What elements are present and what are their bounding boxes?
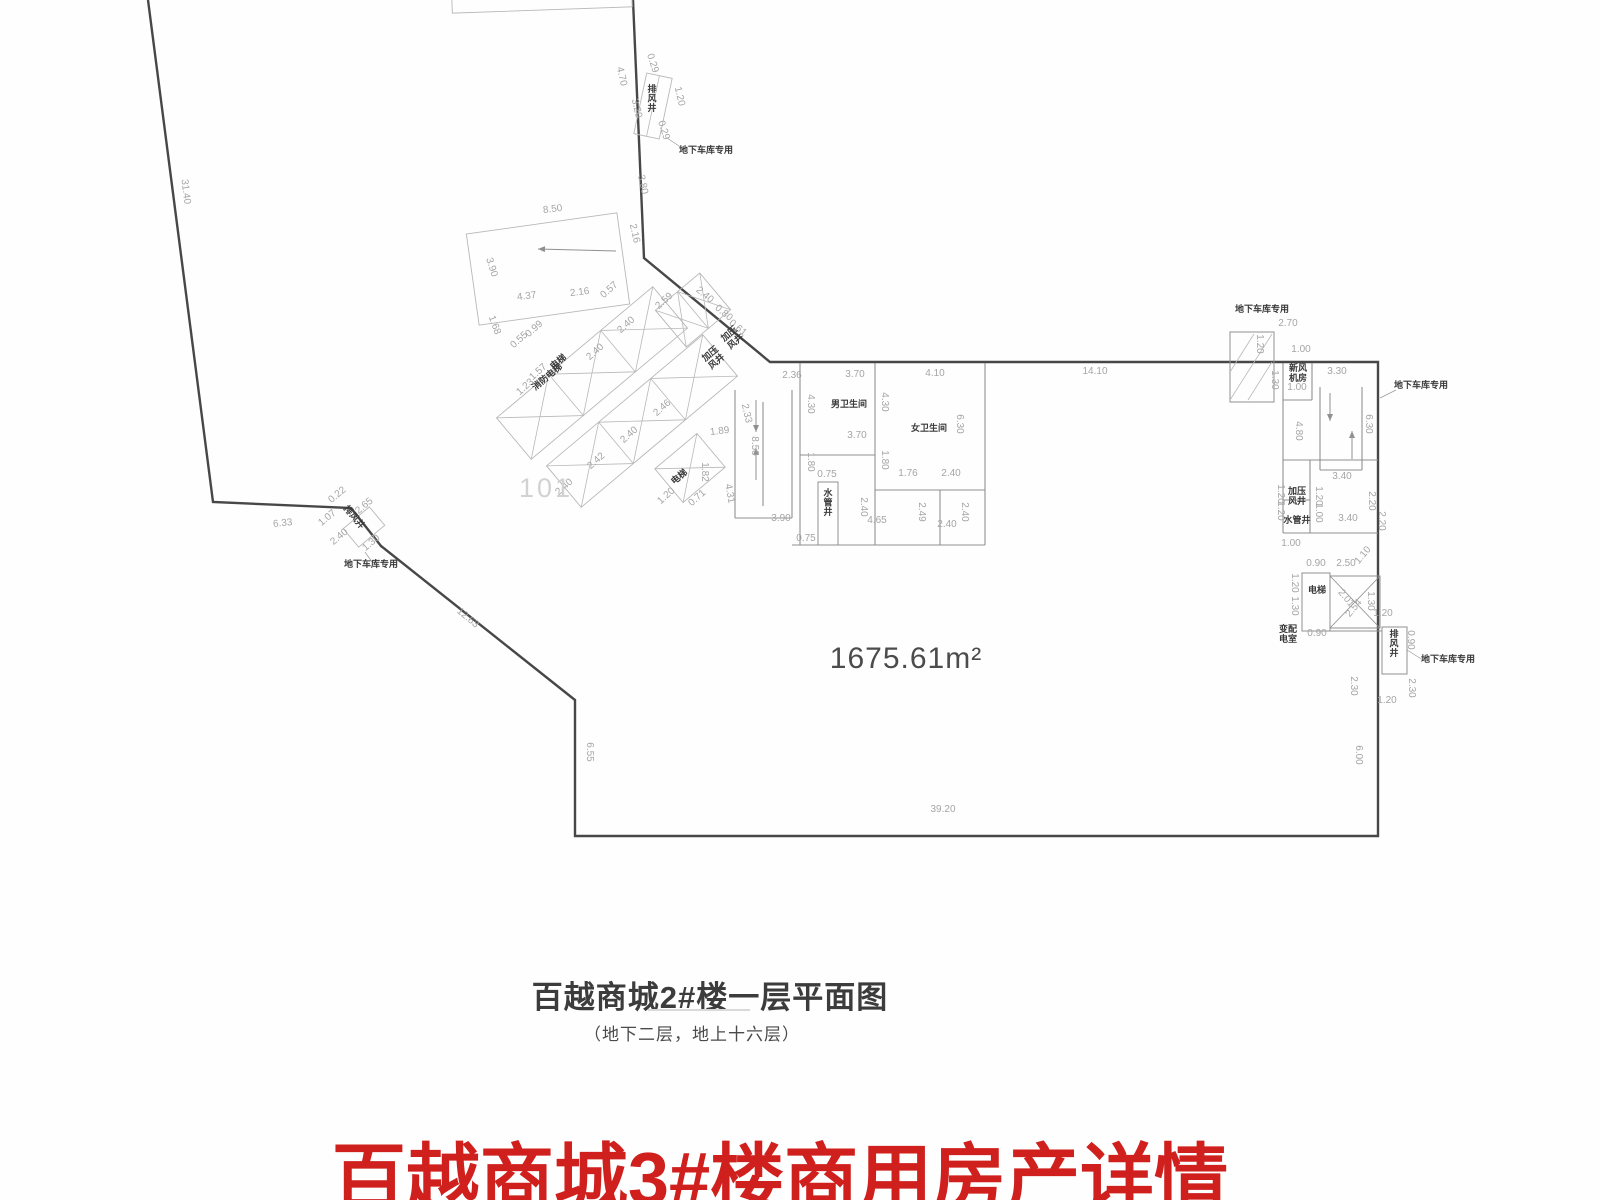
dimension-label: 1.20 xyxy=(655,485,677,506)
room-label: 加压风井 xyxy=(699,343,727,371)
dimension-label: 6.55 xyxy=(584,742,595,762)
area-label: 101 xyxy=(519,473,573,503)
dimension-label: 1.80 xyxy=(805,452,816,472)
dimension-label: 1.20 xyxy=(1289,573,1300,593)
dimension-label: 2.36 xyxy=(782,370,802,381)
dimension-label: 3.80 xyxy=(635,174,650,196)
dimension-label: 6.30 xyxy=(1363,414,1374,434)
dimension-label: 1.30 xyxy=(360,532,382,553)
dimension-label: 2.40 xyxy=(941,468,961,479)
dimension-label: 2.40 xyxy=(959,502,970,522)
dimension-label: 2.40 xyxy=(584,341,606,362)
dimension-label: 1.76 xyxy=(898,468,918,479)
room-label: 新风机房 xyxy=(1289,362,1307,383)
dimension-label: 2.49 xyxy=(916,502,927,522)
dimension-label: 2.33 xyxy=(739,403,754,425)
room-labels: 排风井地下车库专用电梯消防电梯加压风井加压风井电梯男卫生间女卫生间水管井排风井地… xyxy=(342,83,1475,664)
dimension-label: 4.80 xyxy=(1293,421,1304,441)
big-labels: 1011675.61m² xyxy=(519,473,982,675)
room-label: 变配电室 xyxy=(1279,623,1297,644)
dimension-label: 2.59 xyxy=(653,290,675,311)
dimension-label: 4.30 xyxy=(805,394,816,414)
dimension-label: 3.40 xyxy=(1332,471,1352,482)
dimension-label: 1.10 xyxy=(1353,544,1374,566)
dimension-label: 1.30 xyxy=(1289,596,1300,616)
room-label: 排风井 xyxy=(647,83,656,113)
dimension-label: 14.10 xyxy=(1082,366,1107,377)
dimension-label: 3.20 xyxy=(629,98,644,120)
dimension-label: 0.90 xyxy=(1405,630,1416,650)
dimension-label: 6.33 xyxy=(272,517,293,530)
dimension-label: 1.20 xyxy=(1377,695,1397,706)
dimension-label: 1.00 xyxy=(1313,503,1324,523)
dimension-label: 1.80 xyxy=(879,450,890,470)
dimension-label: 0.57 xyxy=(598,279,620,300)
dimension-label: 1.89 xyxy=(709,425,730,438)
dimension-label: 31.40 xyxy=(178,179,192,206)
dimension-label: 4.37 xyxy=(516,290,537,303)
dimension-label: 1.00 xyxy=(1291,344,1311,355)
dimension-label: 2.40 xyxy=(937,519,957,530)
dimension-labels: 31.404.700.293.201.200.293.802.168.503.9… xyxy=(178,52,1417,815)
dimension-label: 2.42 xyxy=(585,450,607,471)
dimension-label: 1.68 xyxy=(486,314,503,336)
leader-lines xyxy=(365,138,1423,660)
dimension-label: 2.16 xyxy=(569,286,590,299)
room-label: 地下车库专用 xyxy=(1421,653,1475,664)
dimension-label: 2.16 xyxy=(627,223,642,245)
dimension-label: 1.20 xyxy=(672,86,687,108)
room-label: 水管井 xyxy=(823,487,833,517)
dimension-label: 2.30 xyxy=(1406,678,1417,698)
stair-escalator-lattice xyxy=(343,0,737,547)
dimension-label: 2.30 xyxy=(1348,676,1359,696)
dimension-label: 0.22 xyxy=(326,484,348,505)
dimension-label: 1.00 xyxy=(1287,382,1307,393)
page: 31.404.700.293.201.200.293.802.168.503.9… xyxy=(0,0,1600,1200)
dimension-label: 3.30 xyxy=(1327,366,1347,377)
dimension-label: 2.70 xyxy=(1278,318,1298,329)
dimension-label: 0.75 xyxy=(817,469,837,480)
dimension-label: 1.20 xyxy=(1373,608,1393,619)
title-underline xyxy=(648,1009,750,1011)
dimension-label: 3.70 xyxy=(847,430,867,441)
room-label: 地下车库专用 xyxy=(344,558,398,569)
dimension-label: 6.00 xyxy=(1353,745,1364,765)
dimension-label: 0.75 xyxy=(796,533,816,544)
room-label: 水管井 xyxy=(1283,514,1310,525)
area-label: 1675.61m² xyxy=(830,642,982,675)
room-label: 地下车库专用 xyxy=(1394,379,1448,390)
dimension-label: 0.29 xyxy=(644,52,661,74)
dimension-label: 3.90 xyxy=(483,256,499,278)
room-label: 电梯 xyxy=(1308,584,1326,595)
room-label: 加压风井 xyxy=(1287,485,1306,506)
dimension-label: 0.90 xyxy=(1307,628,1327,639)
dimension-label: 1.30 xyxy=(1269,370,1280,390)
dimension-label: 8.50 xyxy=(542,203,563,216)
room-label: 地下车库专用 xyxy=(679,144,733,155)
listing-heading: 百越商城3#楼商用房产详情 xyxy=(332,1140,1228,1200)
floor-plan-drawing: 31.404.700.293.201.200.293.802.168.503.9… xyxy=(0,0,1600,1200)
dimension-label: 12.63 xyxy=(454,606,481,631)
dimension-label: 2.40 xyxy=(328,526,350,547)
dimension-label: 2.46 xyxy=(651,397,673,418)
room-label: 女卫生间 xyxy=(911,422,947,433)
dimension-label: 1.00 xyxy=(1281,538,1301,549)
dimension-label: 1.82 xyxy=(699,462,710,482)
dimension-label: 0.90 xyxy=(1306,558,1326,569)
dimension-label: 6.30 xyxy=(954,414,965,434)
room-label: 男卫生间 xyxy=(831,398,867,409)
dimension-label: 4.30 xyxy=(879,392,890,412)
dimension-label: 4.65 xyxy=(867,515,887,526)
dimension-label: 4.10 xyxy=(925,368,945,379)
dimension-label: 2.40 xyxy=(615,314,637,335)
room-label: 电梯 xyxy=(668,466,689,486)
dimension-label: 3.70 xyxy=(845,369,865,380)
dimension-label: 39.20 xyxy=(930,804,955,815)
dimension-label: 1.07 xyxy=(316,507,338,528)
dimension-label: 0.71 xyxy=(686,487,708,508)
room-label: 地下车库专用 xyxy=(1235,303,1289,314)
dimension-label: 8.50 xyxy=(749,436,760,456)
room-label: 排风井 xyxy=(1389,628,1398,658)
dimension-label: 4.70 xyxy=(614,66,629,88)
dimension-label: 1.20 xyxy=(1254,334,1265,354)
dimension-label: 2.20 xyxy=(1366,491,1377,511)
dimension-label: 2.20 xyxy=(1376,511,1387,531)
dimension-label: 3.90 xyxy=(771,513,791,524)
dimension-label: 4.31 xyxy=(722,483,736,505)
dimension-label: 3.40 xyxy=(1338,513,1358,524)
plan-subtitle: （地下二层，地上十六层） xyxy=(584,1020,800,1045)
